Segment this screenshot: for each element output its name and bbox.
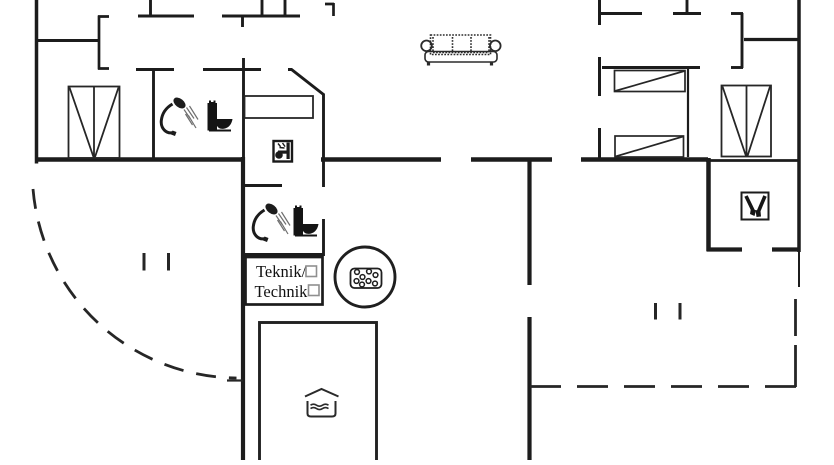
svg-text:Technik: Technik (255, 282, 309, 301)
svg-text:Teknik/: Teknik/ (256, 262, 307, 281)
